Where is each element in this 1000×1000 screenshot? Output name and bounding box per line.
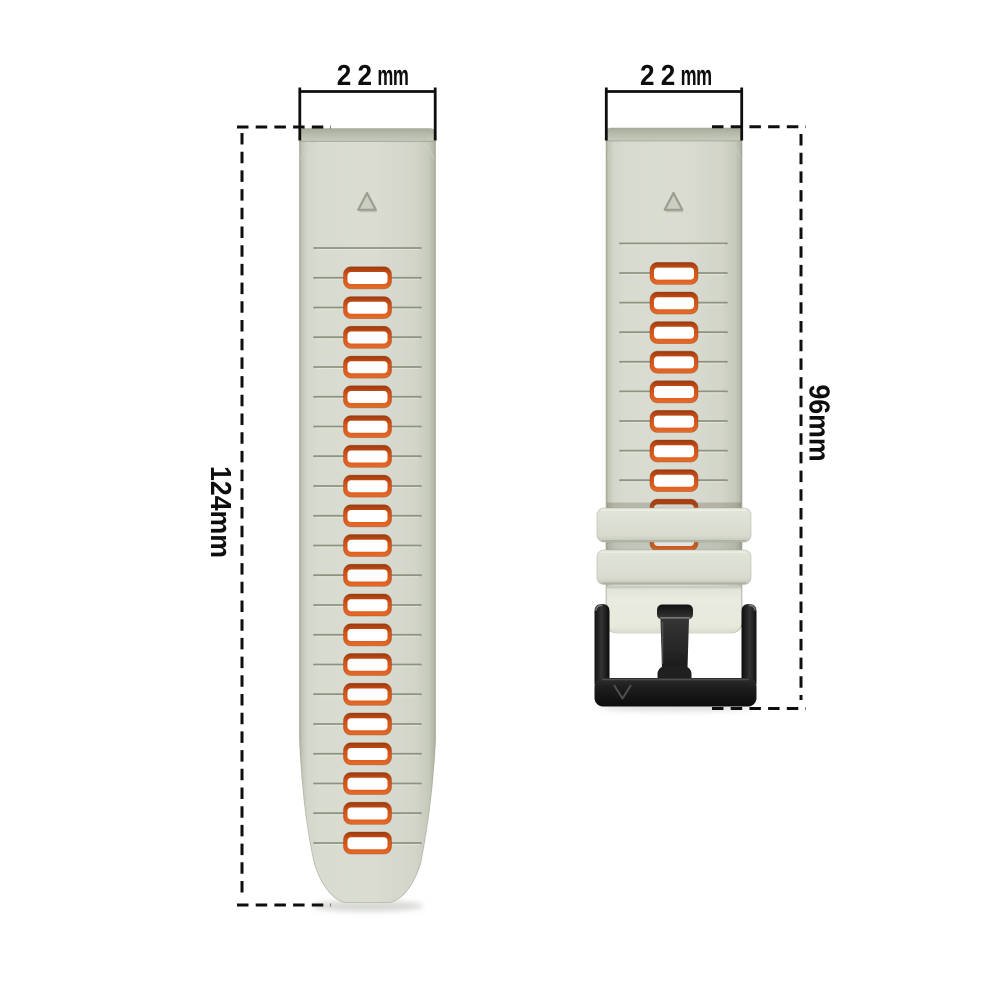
svg-text:96mm: 96mm [803, 384, 835, 461]
svg-text:2: 2 [640, 59, 655, 92]
svg-text:m: m [393, 60, 409, 92]
svg-text:2: 2 [358, 59, 373, 92]
svg-text:2: 2 [337, 59, 352, 92]
svg-text:m: m [377, 60, 393, 92]
svg-text:m: m [681, 60, 697, 92]
svg-text:m: m [696, 60, 712, 92]
svg-text:124mm: 124mm [205, 466, 237, 558]
svg-text:2: 2 [661, 59, 676, 92]
